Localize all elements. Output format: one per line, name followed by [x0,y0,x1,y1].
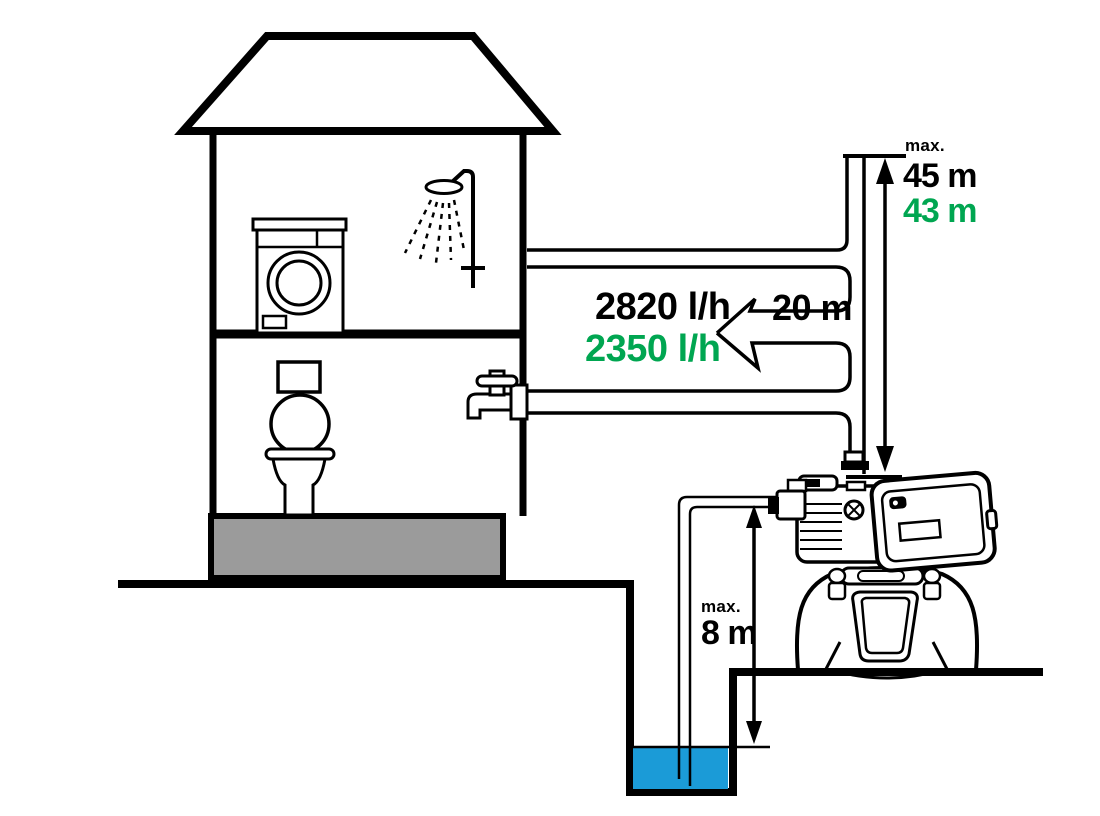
suction-max-caption: max. [701,598,741,615]
flow-rate-black-label: 2820 l/h [595,288,730,326]
roof [183,36,553,131]
arrow-down-head [746,721,762,744]
house [183,36,553,578]
head-height-green-label: 43 m [903,194,977,228]
tap-icon [468,371,527,419]
well-water [633,747,770,789]
shower-icon [405,171,485,288]
toilet-icon [266,362,334,515]
arrow-up-head [746,505,762,528]
horizontal-distance-label: 20 m [772,290,852,326]
suction-depth-label: 8 m [701,616,757,650]
diagram-artwork [0,0,1100,816]
washing-machine-icon [253,219,346,333]
foundation [211,516,503,578]
pump-schematic-diagram: max. 45 m 43 m 2820 l/h 2350 l/h 20 m ma… [0,0,1100,816]
riser-left-and-top-pipe [527,157,847,250]
flow-rate-green-label: 2350 l/h [585,330,720,368]
pump-icon [768,452,1000,678]
arrow-down-head [876,446,894,472]
head-max-caption: max. [905,137,945,154]
head-height-black-label: 45 m [903,159,977,193]
water-body [633,747,728,789]
arrow-up-head [876,158,894,184]
head-measure-arrow [876,158,894,472]
tap-pipe [527,413,850,464]
